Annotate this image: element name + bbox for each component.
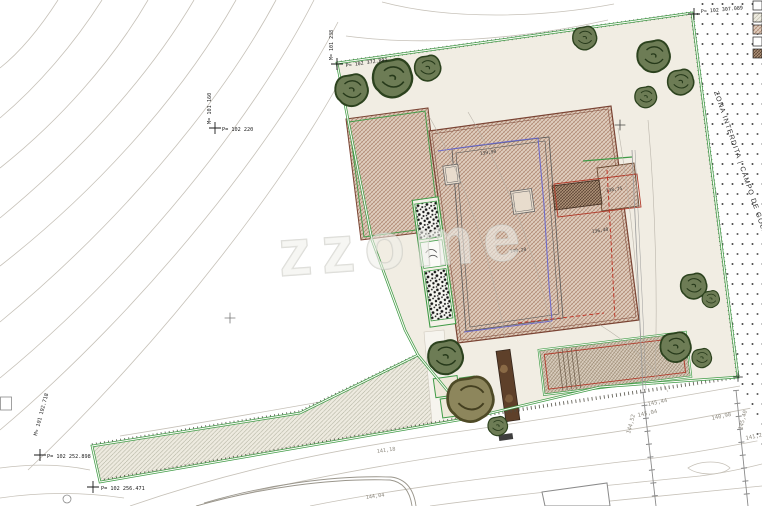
tree [702,291,719,308]
elevation-label: 145,40 [738,410,749,431]
elevation-label: 144,04 [365,492,384,501]
elevation-label: 141,18 [376,446,395,455]
survey-cross [34,449,46,461]
tree [373,59,412,97]
elevation-label: 145,44 [647,398,668,408]
survey-label-m-left: M= 101 160 [207,93,213,124]
utility-box [1,397,12,410]
survey-label-bottom-a: P= 102 252.898 [47,454,91,460]
site-plan-svg: M= 101 160 P= 102 220 M= 101 238 P= 102 … [0,0,762,506]
tree [428,340,463,374]
tree [335,74,368,106]
survey-label-bottom-b: P= 102 256.471 [101,486,145,492]
elevation-label: 140,98 [711,412,732,422]
tree [488,417,508,436]
manhole [63,495,71,503]
tree [415,55,441,81]
tree [660,332,690,362]
road-curves [196,477,416,506]
tree-olive [448,377,494,422]
site-plan-canvas: M= 101 160 P= 102 220 M= 101 238 P= 102 … [0,0,762,506]
elevation-label: 145,04 [637,409,658,419]
neighbor-building [542,483,610,506]
survey-label-p-left: P= 102 220 [222,127,253,133]
survey-label-m-topleft: M= 101 238 [329,30,335,60]
tree [635,86,657,107]
tree [637,40,670,72]
legend-swatches [753,1,762,58]
tree [692,349,712,368]
survey-cross [87,481,99,493]
elevation-label: 144,52 [626,414,637,435]
tree [668,69,694,95]
grid-cross [225,313,236,324]
tree [573,26,597,49]
